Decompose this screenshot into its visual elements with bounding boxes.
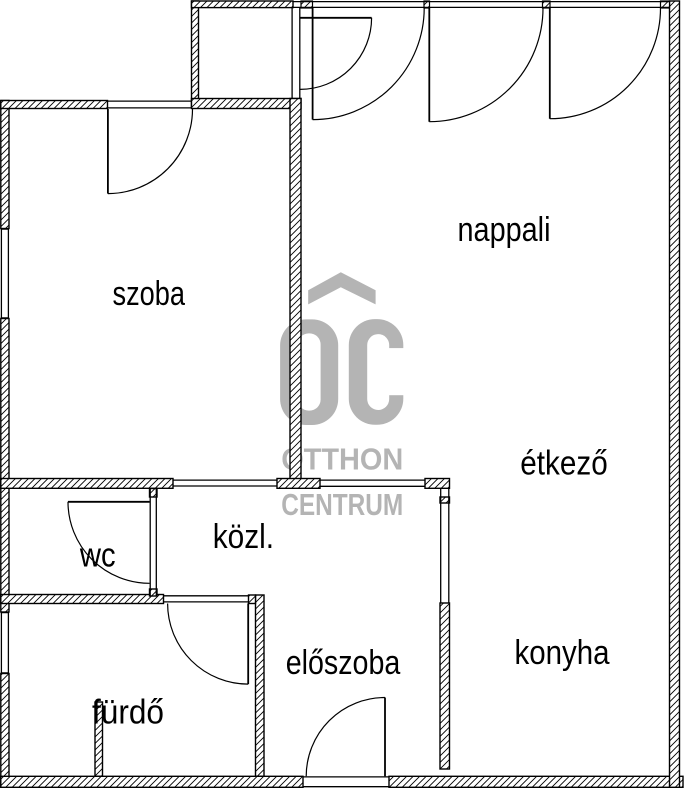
svg-text:fürdő: fürdő [92, 694, 164, 732]
svg-text:előszoba: előszoba [286, 644, 401, 682]
svg-text:közl.: közl. [213, 518, 274, 556]
svg-text:konyha: konyha [515, 634, 610, 672]
svg-text:wc: wc [79, 536, 116, 574]
svg-text:szoba: szoba [113, 275, 186, 313]
svg-text:étkező: étkező [520, 445, 607, 483]
svg-text:nappali: nappali [458, 211, 551, 249]
svg-text:CENTRUM: CENTRUM [281, 487, 403, 522]
